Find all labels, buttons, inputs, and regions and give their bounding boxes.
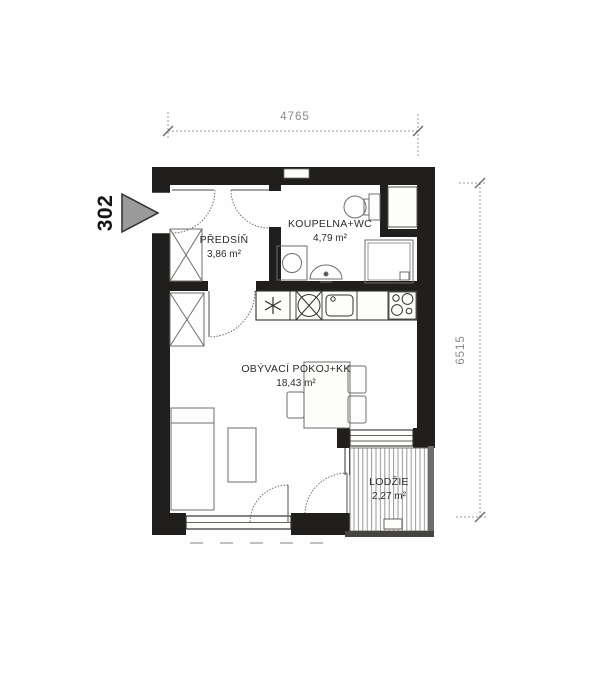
loggia-area-label: 2,27 m² (372, 491, 407, 502)
entrance-arrow-icon (122, 194, 158, 232)
toilet (344, 194, 380, 220)
dimension-top-label: 4765 (280, 111, 310, 123)
loggia-box (384, 519, 402, 529)
bed (171, 408, 214, 510)
living-name-label: OBÝVACÍ POKOJ+KK (241, 362, 350, 375)
unit-number-label: 302 (94, 195, 117, 232)
hallway-wardrobe (170, 229, 202, 281)
top-wall-vent (284, 169, 309, 178)
living-area-label: 18,43 m² (276, 378, 316, 389)
living-room-door (209, 291, 255, 337)
bathroom-area-label: 4,79 m² (313, 233, 348, 244)
coffee-table (228, 428, 256, 482)
bathroom-door (231, 190, 269, 228)
dimension-right-label: 6515 (455, 335, 467, 365)
loggia-floor (350, 448, 428, 531)
shower (365, 240, 413, 283)
loggia-name-label: LODŽIE (369, 475, 409, 488)
washing-machine (277, 246, 307, 280)
hallway-area-label: 3,86 m² (207, 249, 242, 260)
floor-plan-page: 4765 6515 302 (0, 0, 615, 687)
loggia-right-wall (428, 446, 434, 533)
bathroom-name-label: KOUPELNA+WC (288, 218, 372, 230)
loggia-door (305, 473, 347, 513)
living-wardrobe (170, 293, 204, 346)
living-room-window (186, 485, 291, 529)
floor-plan-drawing: 4765 6515 302 (0, 0, 615, 687)
loggia-bottom-wall (345, 531, 434, 537)
loggia-left-wall (345, 448, 350, 475)
entrance-door (152, 190, 215, 234)
bathroom-niche (388, 187, 417, 227)
hallway-name-label: PŘEDSÍŇ (200, 233, 249, 246)
kitchen-counter (256, 291, 417, 320)
loggia-window (350, 430, 413, 446)
washbasin (310, 265, 342, 282)
